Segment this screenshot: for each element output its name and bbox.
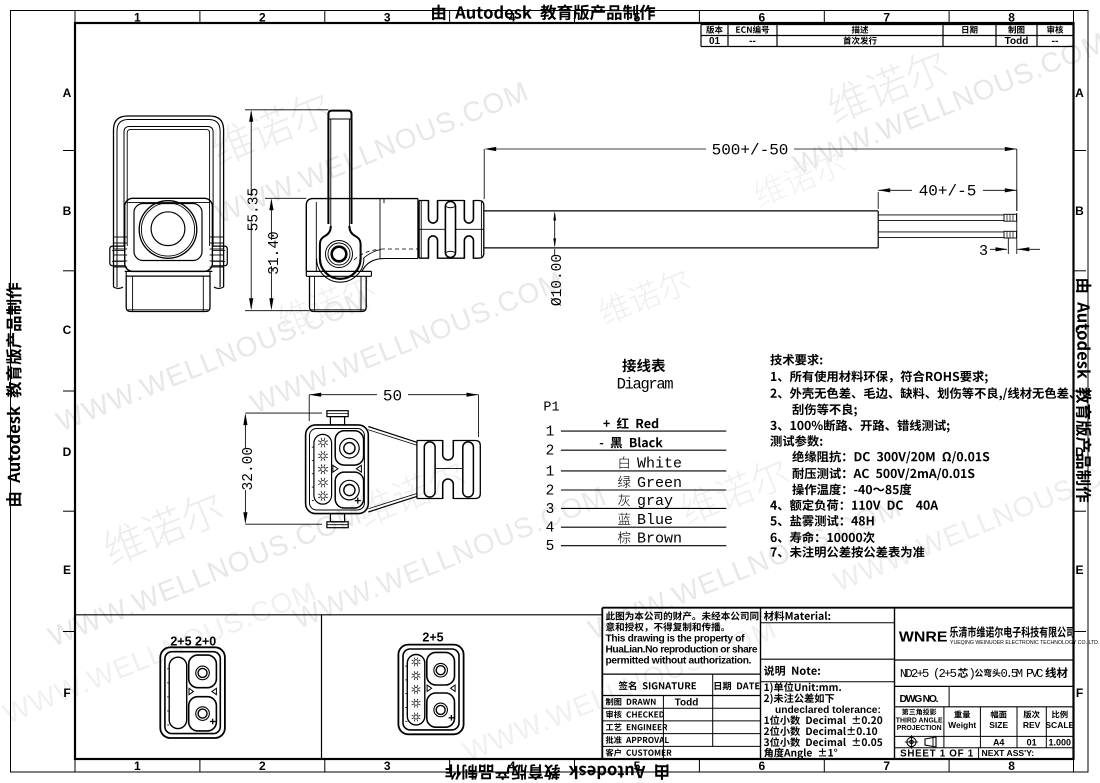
svg-text:Weight: Weight (948, 720, 976, 730)
svg-text:REV: REV (1023, 720, 1041, 730)
svg-text:ND2+5 (2+5: ND2+5 (2+5 (900, 667, 957, 681)
svg-text:31.40: 31.40 (267, 231, 283, 275)
svg-text:Diagram: Diagram (617, 376, 674, 394)
svg-text:1: 1 (134, 759, 141, 773)
svg-text:A4: A4 (993, 737, 1005, 747)
svg-text:2: 2 (259, 11, 266, 25)
svg-text:Green: Green (637, 475, 682, 492)
svg-text:B: B (63, 204, 72, 218)
svg-text:SIZE: SIZE (989, 720, 1008, 730)
svg-text:White: White (637, 456, 682, 473)
svg-text:1: 1 (134, 11, 141, 25)
svg-text:01: 01 (1027, 737, 1037, 747)
svg-text:--: -- (749, 36, 756, 47)
svg-text:8: 8 (1008, 759, 1015, 773)
svg-text:DWG NO.: DWG NO. (900, 694, 939, 705)
svg-text:): ) (969, 667, 976, 681)
svg-text:0.5M PVC: 0.5M PVC (1001, 667, 1044, 681)
svg-text:1.000: 1.000 (1049, 737, 1072, 747)
svg-text:3: 3 (384, 759, 391, 773)
svg-text:6: 6 (758, 759, 765, 773)
svg-text:B: B (1075, 204, 1084, 218)
svg-text:32.00: 32.00 (241, 447, 257, 491)
svg-text:3: 3 (979, 243, 988, 260)
svg-text:undeclared tolerance:: undeclared tolerance: (775, 705, 881, 716)
svg-text:2: 2 (546, 444, 555, 460)
svg-text:Blue: Blue (637, 512, 673, 529)
svg-text:8: 8 (1008, 11, 1015, 25)
svg-text:NEXT ASS'Y:: NEXT ASS'Y: (982, 748, 1035, 758)
svg-text:500+/-50: 500+/-50 (712, 142, 789, 160)
svg-text:PROJECTION: PROJECTION (897, 725, 942, 732)
svg-text:2+5: 2+5 (422, 631, 443, 645)
svg-text:YUEQING WEINUOER ELECTRONIC TE: YUEQING WEINUOER ELECTRONIC TECHNOLOGY C… (950, 640, 1099, 646)
svg-text:2+5 2+0: 2+5 2+0 (170, 634, 216, 648)
svg-text:--: -- (1052, 36, 1059, 47)
svg-text:1: 1 (546, 464, 555, 480)
svg-text:Brown: Brown (637, 531, 682, 548)
svg-text:SHEET 1 OF 1: SHEET 1 OF 1 (900, 748, 974, 759)
svg-text:Ø10.00: Ø10.00 (550, 254, 566, 306)
svg-text:01: 01 (709, 36, 721, 47)
svg-text:This drawing is the property o: This drawing is the property of (606, 634, 746, 645)
svg-text:A: A (63, 86, 72, 100)
svg-text:40+/-5: 40+/-5 (919, 183, 977, 201)
svg-text:3: 3 (546, 502, 555, 518)
svg-text:4: 4 (546, 521, 555, 537)
svg-text:SCALE: SCALE (1045, 720, 1074, 730)
svg-text:2: 2 (259, 759, 266, 773)
svg-text:6: 6 (758, 11, 765, 25)
svg-text:5: 5 (546, 539, 555, 555)
svg-text:1: 1 (546, 425, 555, 441)
svg-text:WNRE: WNRE (899, 629, 948, 645)
svg-text:7: 7 (883, 759, 890, 773)
svg-text:E: E (63, 563, 71, 577)
svg-text:HuaLian.No reproduction or sha: HuaLian.No reproduction or share (606, 645, 758, 656)
svg-text:Todd: Todd (675, 697, 699, 708)
svg-text:C: C (63, 323, 72, 337)
svg-text:E: E (1075, 563, 1083, 577)
svg-text:A: A (1075, 86, 1084, 100)
svg-text:7: 7 (883, 11, 890, 25)
svg-text:permitted without authorizatio: permitted without authorization. (606, 655, 752, 666)
svg-text:2: 2 (546, 484, 555, 500)
svg-text:55.35: 55.35 (247, 188, 263, 232)
svg-text:Todd: Todd (1005, 36, 1029, 47)
svg-text:THIRD ANGLE: THIRD ANGLE (896, 717, 943, 724)
svg-text:50: 50 (383, 388, 402, 406)
svg-text:P1: P1 (543, 401, 559, 416)
svg-text:D: D (63, 445, 72, 459)
svg-text:F: F (1076, 686, 1083, 700)
svg-text:3: 3 (384, 11, 391, 25)
svg-text:F: F (63, 686, 70, 700)
svg-text:gray: gray (637, 493, 673, 510)
